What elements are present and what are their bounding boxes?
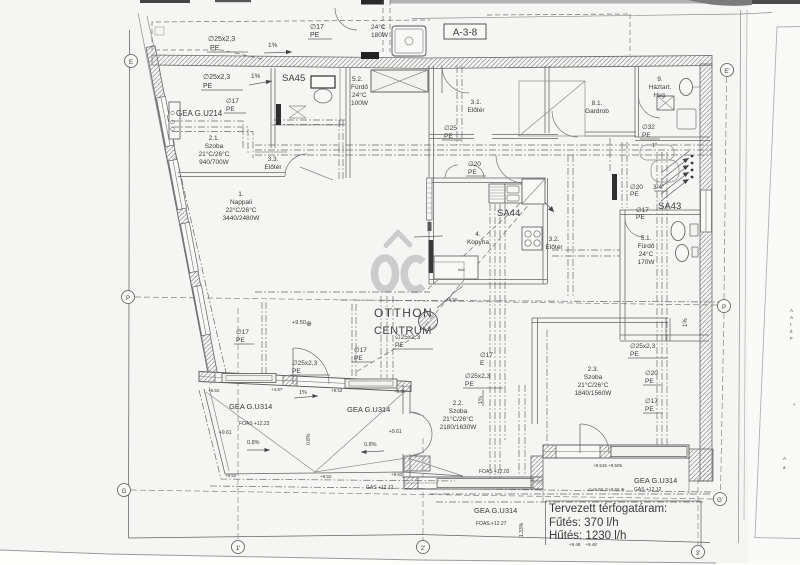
svg-text:0.8%: 0.8% xyxy=(247,440,260,446)
svg-text:GAS +12.12: GAS +12.12 xyxy=(366,485,394,491)
svg-text:1%: 1% xyxy=(268,42,278,49)
svg-text:∅17: ∅17 xyxy=(480,352,493,359)
svg-text:+: + xyxy=(793,402,796,407)
svg-text:2.2.: 2.2. xyxy=(453,400,464,407)
svg-text:PE: PE xyxy=(292,368,301,375)
svg-text:+9.58: +9.58 xyxy=(394,389,406,394)
svg-text:GEA G.U314: GEA G.U314 xyxy=(474,506,517,515)
svg-text:∅32: ∅32 xyxy=(642,124,655,131)
svg-text:2': 2' xyxy=(421,546,425,552)
svg-text:GAS +12.12: GAS +12.12 xyxy=(634,487,662,493)
svg-text:∅17: ∅17 xyxy=(226,98,239,105)
svg-text:GEA G.U314: GEA G.U314 xyxy=(634,476,677,485)
svg-text:∅17: ∅17 xyxy=(354,347,367,354)
svg-text:9.: 9. xyxy=(657,76,663,83)
svg-text:+9.48 +9.48: +9.48 +9.48 xyxy=(569,542,597,547)
svg-text:PE: PE xyxy=(630,191,639,198)
svg-text:GEA G.U214: GEA G.U214 xyxy=(176,109,223,118)
svg-text:PE: PE xyxy=(444,133,453,140)
svg-text:1%: 1% xyxy=(251,73,261,80)
svg-text:E: E xyxy=(129,60,133,66)
svg-text:PE: PE xyxy=(354,355,363,362)
svg-text:SA45: SA45 xyxy=(282,73,305,84)
svg-text:Hűtés: 1230 l/h: Hűtés: 1230 l/h xyxy=(549,530,626,542)
svg-text:∅17: ∅17 xyxy=(636,207,649,214)
svg-text:∅25x2,3: ∅25x2,3 xyxy=(292,360,318,367)
svg-text:E: E xyxy=(480,360,485,367)
svg-text:180W: 180W xyxy=(371,32,389,39)
svg-text:PE: PE xyxy=(395,342,404,349)
svg-text:PE: PE xyxy=(468,169,477,176)
svg-text:∅20: ∅20 xyxy=(630,184,643,191)
svg-text:+9.52: +9.52 xyxy=(331,388,343,393)
svg-text:∅17: ∅17 xyxy=(236,329,249,336)
svg-text:+9.50: +9.50 xyxy=(446,297,458,302)
svg-text:1': 1' xyxy=(236,546,240,552)
svg-text:0.8%: 0.8% xyxy=(306,433,312,445)
svg-text:PE: PE xyxy=(203,83,213,90)
svg-text:5.2.: 5.2. xyxy=(352,76,363,83)
svg-text:24°C: 24°C xyxy=(639,250,654,258)
svg-text:3.1.: 3.1. xyxy=(471,99,482,106)
svg-text:Konyha: Konyha xyxy=(467,239,489,246)
svg-text:Előtér: Előtér xyxy=(546,244,564,251)
svg-text:PE: PE xyxy=(642,132,651,139)
svg-text:FOAS +12.03: FOAS +12.03 xyxy=(479,469,510,475)
svg-text:Szoba: Szoba xyxy=(449,408,468,415)
svg-text:Fürdő: Fürdő xyxy=(351,84,368,91)
svg-text:Tervezett térfogatáram:: Tervezett térfogatáram: xyxy=(549,503,667,515)
svg-text:PE: PE xyxy=(645,378,654,385)
svg-text:0.8%: 0.8% xyxy=(364,442,377,448)
svg-text:∅25x2,3: ∅25x2,3 xyxy=(465,373,491,380)
svg-text:PE: PE xyxy=(465,381,474,388)
svg-text:Fűtés: 370 l/h: Fűtés: 370 l/h xyxy=(549,517,619,529)
svg-text:Gardrob: Gardrob xyxy=(585,108,609,115)
svg-text:21°C/26°C: 21°C/26°C xyxy=(199,150,230,158)
svg-text:8.1.: 8.1. xyxy=(592,100,603,107)
svg-text:Előtér: Előtér xyxy=(468,107,486,114)
svg-text:1": 1" xyxy=(652,143,657,149)
svg-text:+9.52: +9.52 xyxy=(225,473,237,478)
svg-text:1.: 1. xyxy=(238,191,244,198)
svg-text:100W: 100W xyxy=(351,100,369,107)
svg-text:Szoba: Szoba xyxy=(205,143,224,150)
svg-text:PE: PE xyxy=(310,32,320,39)
svg-text:G': G' xyxy=(717,498,723,504)
svg-text:4.: 4. xyxy=(475,231,481,238)
svg-text:∅25x2,3: ∅25x2,3 xyxy=(208,36,235,43)
svg-text:1%: 1% xyxy=(683,318,689,327)
svg-text:PE: PE xyxy=(636,214,645,221)
svg-text:SA44: SA44 xyxy=(497,208,520,219)
svg-text:SA43: SA43 xyxy=(658,201,681,212)
svg-text:3.3.: 3.3. xyxy=(268,156,279,163)
svg-text:GEA G.U314: GEA G.U314 xyxy=(347,405,390,414)
svg-text:+9.61: +9.61 xyxy=(389,429,402,435)
svg-text:+9.61: +9.61 xyxy=(219,430,232,436)
svg-text:21°C/26°C: 21°C/26°C xyxy=(578,381,609,389)
svg-text:PE: PE xyxy=(226,106,235,113)
svg-text:∅20: ∅20 xyxy=(645,370,658,377)
svg-text:1%: 1% xyxy=(299,390,307,396)
svg-text:Nappali: Nappali xyxy=(230,199,252,206)
svg-text:⊙+9.50 ⊙+9.50 ⊕: ⊙+9.50 ⊙+9.50 ⊕ xyxy=(588,487,625,492)
svg-text:∅25x2,3: ∅25x2,3 xyxy=(395,334,421,341)
svg-text:3': 3' xyxy=(696,551,700,557)
svg-text:+9.515 +9.505: +9.515 +9.505 xyxy=(593,463,623,468)
svg-text:∅25x2,3: ∅25x2,3 xyxy=(203,74,230,81)
svg-text:∅17: ∅17 xyxy=(310,24,324,31)
svg-text:FOAS:+12.27: FOAS:+12.27 xyxy=(476,521,507,527)
svg-text:1840/1560W: 1840/1560W xyxy=(575,390,613,397)
svg-text:FOAS +12.23: FOAS +12.23 xyxy=(239,421,270,427)
svg-text:Szoba: Szoba xyxy=(584,374,603,381)
svg-text:Előtér: Előtér xyxy=(265,164,283,171)
svg-text:3/4": 3/4" xyxy=(653,184,665,191)
svg-text:Háztart.: Háztart. xyxy=(649,84,672,91)
svg-text:PE: PE xyxy=(630,351,639,358)
svg-text:P: P xyxy=(126,296,130,302)
svg-text:GEA G.U314: GEA G.U314 xyxy=(229,402,272,411)
svg-text:P: P xyxy=(722,305,726,311)
svg-text:⊕: ⊕ xyxy=(306,321,312,328)
svg-text:5.1.: 5.1. xyxy=(641,235,652,242)
svg-text:+9.52: +9.52 xyxy=(320,474,332,479)
svg-text:21°C/26°C: 21°C/26°C xyxy=(443,415,474,423)
svg-text:Hsg.: Hsg. xyxy=(653,92,667,99)
svg-text:∅25: ∅25 xyxy=(444,125,457,132)
svg-text:2180/1630W: 2180/1630W xyxy=(440,424,478,431)
svg-text:∅17: ∅17 xyxy=(645,398,658,405)
svg-text:+9.52: +9.52 xyxy=(391,472,403,477)
svg-text:G: G xyxy=(122,489,127,495)
svg-text:24°C: 24°C xyxy=(371,23,386,31)
svg-text:2.3.: 2.3. xyxy=(588,366,599,373)
svg-text:A: A xyxy=(790,308,793,313)
svg-text:PE: PE xyxy=(210,45,220,52)
svg-text:+4.87: +4.87 xyxy=(271,387,283,392)
svg-text:940/700W: 940/700W xyxy=(199,159,229,166)
svg-text:E': E' xyxy=(724,69,729,75)
svg-text:+9.50: +9.50 xyxy=(292,320,306,326)
svg-text:2.1.: 2.1. xyxy=(209,135,220,142)
svg-text:PE: PE xyxy=(236,337,245,344)
svg-text:###: ### xyxy=(458,267,465,272)
svg-text:1.33%: 1.33% xyxy=(519,522,525,537)
svg-text:F: F xyxy=(790,336,793,341)
svg-text:A: A xyxy=(783,456,786,461)
svg-text:Fürdő: Fürdő xyxy=(638,243,655,250)
svg-text:22°C/26°C: 22°C/26°C xyxy=(226,206,257,214)
svg-text:∅20: ∅20 xyxy=(468,161,481,168)
svg-text:170W: 170W xyxy=(638,259,656,266)
svg-text:3440/2480W: 3440/2480W xyxy=(223,215,261,222)
svg-text:24°C: 24°C xyxy=(352,91,367,99)
svg-text:A-3-8: A-3-8 xyxy=(453,28,478,39)
svg-text:PE: PE xyxy=(645,406,654,413)
svg-text:3.2.: 3.2. xyxy=(549,236,560,243)
svg-text:+9.52: +9.52 xyxy=(208,388,220,393)
svg-text:A: A xyxy=(790,315,793,320)
svg-text:∅25x2,3: ∅25x2,3 xyxy=(630,343,656,350)
